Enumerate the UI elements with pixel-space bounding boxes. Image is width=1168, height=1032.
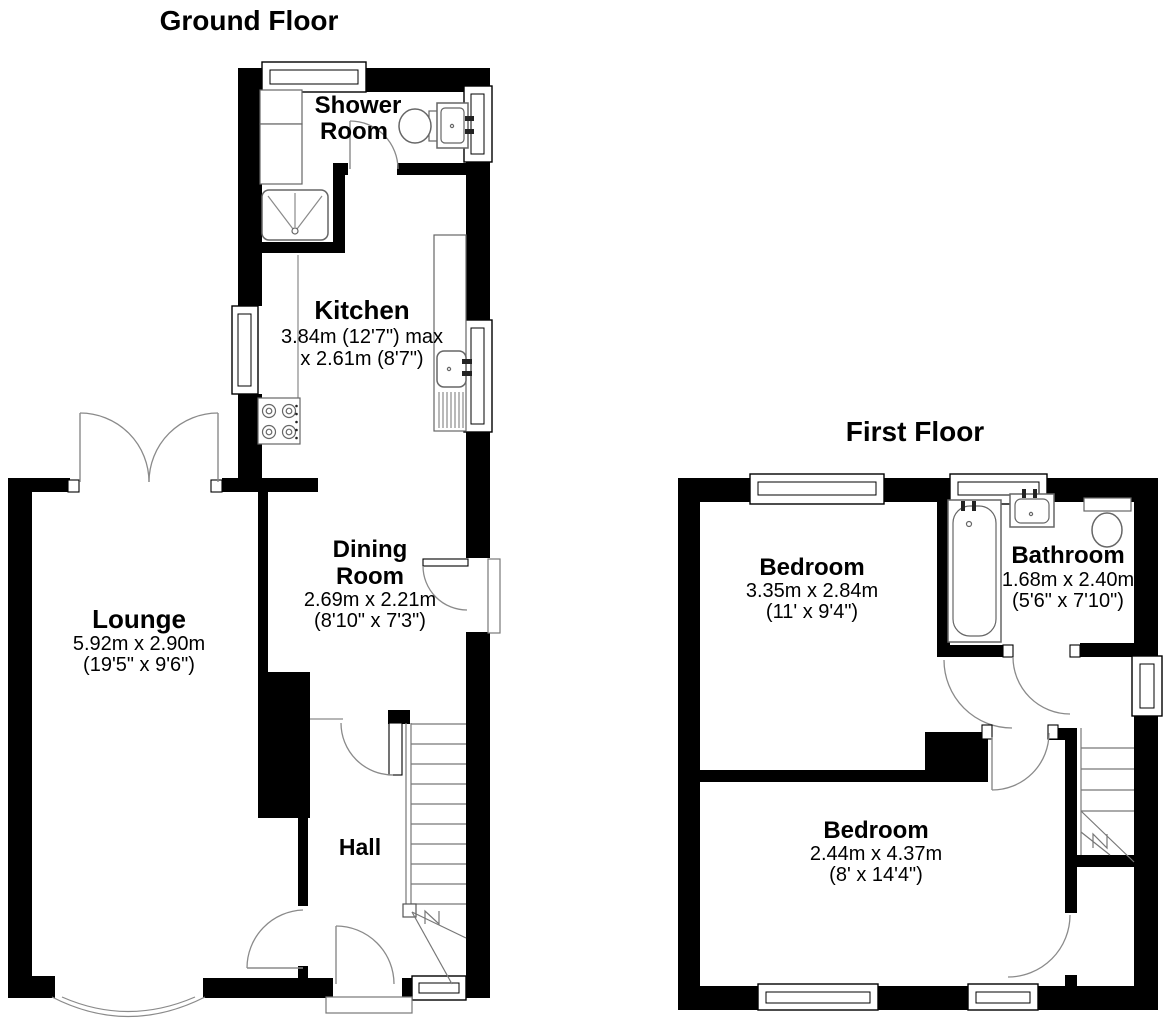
window-symbol: [968, 984, 1038, 1010]
room-label-bedroom-front: Bedroom 3.35m x 2.84m (11' x 9'4"): [746, 554, 878, 623]
svg-text:Kitchen: Kitchen: [314, 295, 409, 325]
door-arc-lounge-hall: [247, 910, 303, 968]
svg-text:Room: Room: [336, 563, 404, 590]
svg-text:2.69m x 2.21m: 2.69m x 2.21m: [304, 589, 436, 611]
window-symbol: [232, 306, 258, 394]
svg-text:Bedroom: Bedroom: [823, 817, 928, 844]
door-arc-bathroom: [1003, 645, 1080, 714]
room-label-bedroom-back: Bedroom 2.44m x 4.37m (8' x 14'4"): [810, 817, 942, 886]
bay-window-symbol: [52, 997, 205, 1017]
hob-icon: [258, 398, 300, 444]
floor-plan-figure: Ground Floor Shower Room Kitchen 3.84m (…: [0, 0, 1168, 1032]
svg-text:Bedroom: Bedroom: [759, 554, 864, 581]
svg-text:Hall: Hall: [339, 834, 381, 860]
first-floor-title: First Floor: [846, 416, 985, 447]
svg-text:Dining: Dining: [333, 536, 408, 563]
floor-plan-page: Ground Floor Shower Room Kitchen 3.84m (…: [0, 0, 1168, 1032]
svg-text:3.35m x 2.84m: 3.35m x 2.84m: [746, 580, 878, 602]
basin-icon: [437, 103, 474, 148]
svg-text:2.44m x 4.37m: 2.44m x 4.37m: [810, 843, 942, 865]
room-label-kitchen: Kitchen 3.84m (12'7") max x 2.61m (8'7"): [281, 295, 443, 370]
window-symbol: [750, 474, 884, 504]
svg-text:Bathroom: Bathroom: [1011, 542, 1124, 569]
room-label-shower-room: Shower Room: [315, 92, 402, 145]
double-doors-lounge: [68, 413, 222, 492]
room-label-bathroom: Bathroom 1.68m x 2.40m (5'6" x 7'10"): [1002, 542, 1134, 612]
svg-text:Shower: Shower: [315, 92, 402, 119]
svg-text:5.92m x 2.90m: 5.92m x 2.90m: [73, 633, 205, 655]
toilet-icon: [399, 109, 439, 143]
room-label-lounge: Lounge 5.92m x 2.90m (19'5" x 9'6"): [73, 604, 205, 676]
basin-icon: [1010, 489, 1054, 527]
bath-icon: [948, 500, 1001, 642]
svg-text:(5'6" x 7'10"): (5'6" x 7'10"): [1012, 590, 1124, 612]
shower-tray-icon: [262, 190, 328, 240]
door-arc-hall-dining: [341, 723, 402, 775]
window-symbol: [412, 976, 466, 1000]
toilet-icon: [1084, 498, 1131, 547]
svg-text:Room: Room: [320, 118, 388, 145]
door-arc-bedroom-front: [944, 660, 1012, 728]
room-label-hall: Hall: [339, 834, 381, 860]
ground-floor-walls: [8, 68, 490, 998]
svg-text:(8' x 14'4"): (8' x 14'4"): [829, 864, 923, 886]
first-floor-plan: First Floor Bedroom 3.35m x 2.84m (11' x…: [678, 416, 1162, 1010]
svg-text:(19'5" x 9'6"): (19'5" x 9'6"): [83, 654, 195, 676]
ground-floor-plan: Ground Floor Shower Room Kitchen 3.84m (…: [8, 5, 500, 1017]
svg-text:1.68m x 2.40m: 1.68m x 2.40m: [1002, 569, 1134, 591]
door-arc-front-entrance: [326, 926, 412, 1013]
staircase: [1081, 728, 1134, 862]
svg-text:(11' x 9'4"): (11' x 9'4"): [766, 601, 858, 623]
cupboard-icon: [260, 90, 302, 184]
svg-text:3.84m (12'7") max: 3.84m (12'7") max: [281, 326, 443, 348]
door-symbols-first: [944, 645, 1080, 977]
ground-floor-title: Ground Floor: [160, 5, 339, 36]
door-arc-bedroom-back: [982, 725, 1058, 790]
window-symbol: [758, 984, 878, 1010]
window-symbol: [262, 62, 366, 92]
staircase: [403, 723, 466, 984]
door-arc-stairs-cupboard: [1008, 915, 1070, 977]
room-label-dining-room: Dining Room 2.69m x 2.21m (8'10" x 7'3"): [304, 536, 436, 632]
svg-text:(8'10" x 7'3"): (8'10" x 7'3"): [314, 610, 426, 632]
window-symbol: [1132, 656, 1162, 716]
svg-text:x 2.61m (8'7"): x 2.61m (8'7"): [300, 348, 423, 370]
svg-text:Lounge: Lounge: [92, 604, 186, 634]
